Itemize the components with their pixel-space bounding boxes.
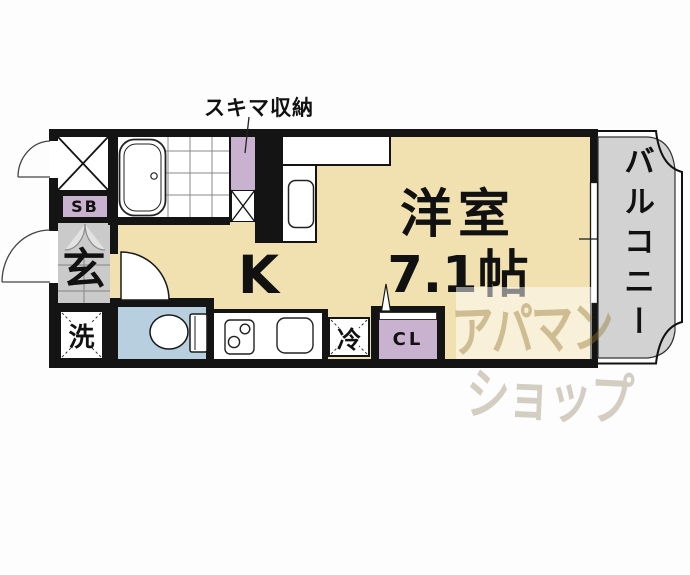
toilet-wall-top xyxy=(110,298,214,307)
entrance-door-arc xyxy=(2,230,50,282)
bathroom-floor xyxy=(118,137,230,217)
wall-entrance-right-b xyxy=(110,299,118,307)
watermark-line2: ショップ xyxy=(464,349,633,437)
washer-label: 洗 xyxy=(68,317,94,354)
closet: CL xyxy=(379,320,437,359)
gap-storage-left-line xyxy=(229,137,231,222)
kitchen-counter xyxy=(214,313,322,359)
washroom-line-3 xyxy=(315,166,317,243)
shoe-box: SB xyxy=(63,196,107,217)
closet-label: CL xyxy=(393,329,424,350)
wall-top xyxy=(50,129,598,137)
shoe-box-label: SB xyxy=(71,197,99,216)
floorplan: SB 洗 冷 CL xyxy=(0,0,690,575)
washer-space: 洗 xyxy=(59,310,104,360)
washroom-line-1 xyxy=(283,164,391,166)
toilet-wall-right xyxy=(206,298,214,368)
utility-shaft-room xyxy=(58,137,108,190)
wall-utility-right xyxy=(108,137,118,225)
washroom-area-vertical xyxy=(283,137,317,243)
washroom-line-4 xyxy=(283,241,317,243)
storage-callout-label: スキマ収納 xyxy=(204,92,314,122)
closet-door xyxy=(379,312,437,320)
wall-entrance-right-a xyxy=(110,223,118,254)
toilet-room-floor xyxy=(118,307,206,359)
balcony-label: バルコニー xyxy=(614,145,659,375)
structure-column xyxy=(255,129,283,243)
wall-bath-bottom xyxy=(110,217,230,225)
kitchen-label: K xyxy=(238,249,279,302)
utility-door-arc xyxy=(18,141,50,177)
refrigerator-space: 冷 xyxy=(328,317,370,357)
gap-storage-xbox xyxy=(231,190,255,222)
washroom-line-2 xyxy=(389,137,391,166)
gap-storage-strip xyxy=(231,137,255,190)
wall-right-upper xyxy=(590,129,598,182)
refrigerator-label: 冷 xyxy=(337,320,361,355)
entrance-label: 玄 xyxy=(60,249,108,292)
entrance-door-opening xyxy=(49,231,58,283)
utility-door-opening xyxy=(49,141,58,178)
